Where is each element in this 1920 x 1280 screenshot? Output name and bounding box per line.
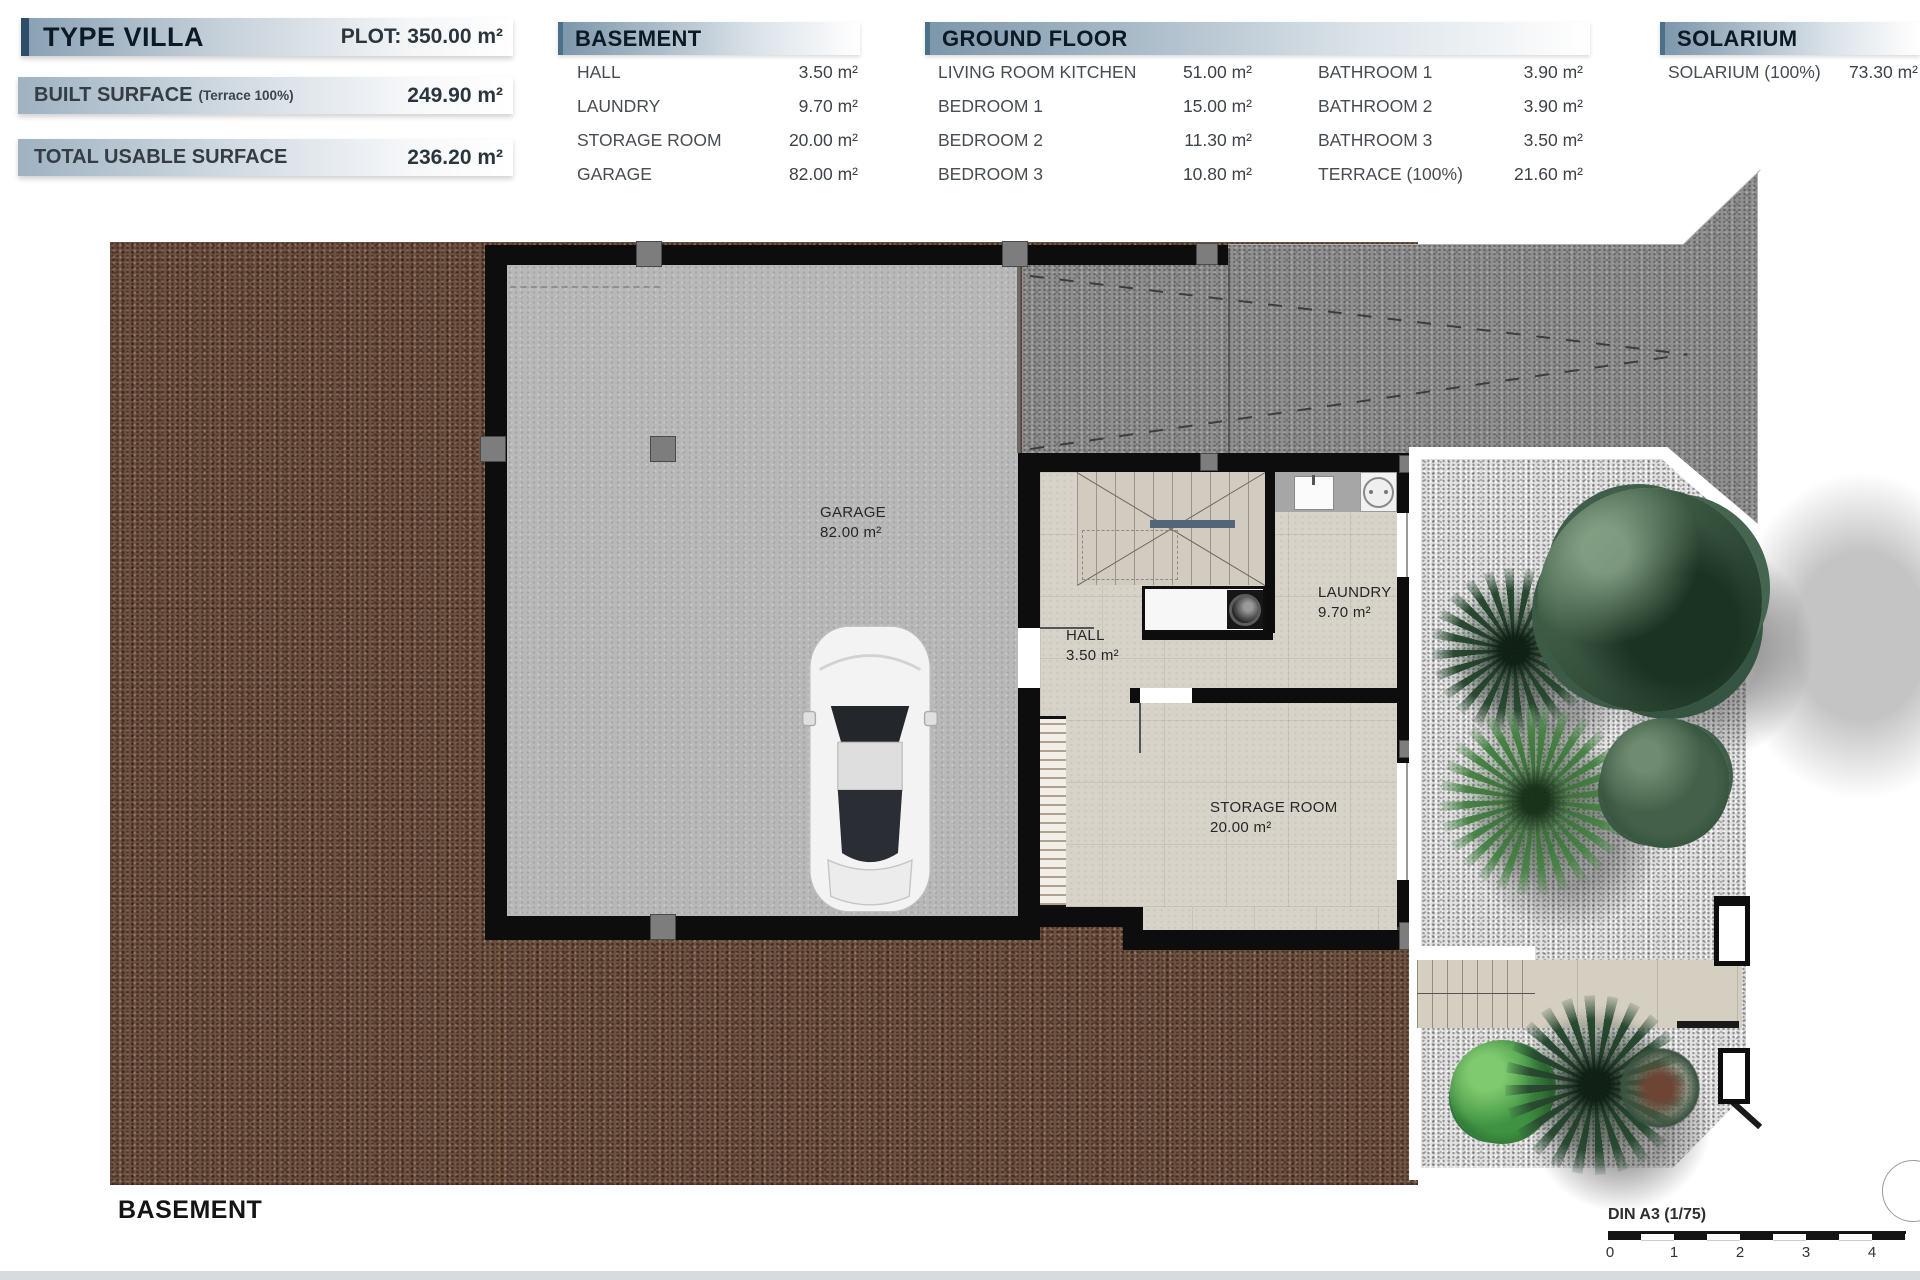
floor-caption: BASEMENT <box>118 1196 262 1225</box>
type-villa-bar: TYPE VILLA PLOT: 350.00 m² <box>21 18 513 56</box>
basement-table-rows: HALL3.50 m² LAUNDRY9.70 m² STORAGE ROOM2… <box>577 62 858 198</box>
steps-handrail-line <box>1417 993 1535 994</box>
house-wall-left-lower <box>1018 688 1040 927</box>
built-surface-label: BUILT SURFACE <box>34 84 193 107</box>
total-usable-value: 236.20 m² <box>407 146 503 170</box>
column-marker <box>636 241 662 267</box>
floor-plan-page: GARAGE 82.00 m² HALL 3.50 m² LAUNDRY 9.7… <box>0 0 1920 1280</box>
room-label-hall: HALL 3.50 m² <box>1066 626 1119 665</box>
room-label-garage: GARAGE 82.00 m² <box>820 503 886 542</box>
scale-tick: 1 <box>1670 1244 1678 1261</box>
table-row: LAUNDRY9.70 m² <box>577 96 858 120</box>
sink-tap-icon <box>1312 475 1315 485</box>
laundry-basin-unit <box>1360 472 1397 512</box>
house-wall-top <box>1040 453 1417 472</box>
column-marker <box>1002 241 1028 267</box>
room-label-storage: STORAGE ROOM 20.00 m² <box>1210 798 1338 837</box>
scale-bar-segments <box>1608 1234 1905 1241</box>
table-row: TERRACE (100%)21.60 m² <box>1318 164 1583 188</box>
scale-tick: 3 <box>1802 1244 1810 1261</box>
garage-floor <box>507 265 1018 916</box>
column-marker <box>650 914 676 940</box>
table-row: SOLARIUM (100%)73.30 m² <box>1668 62 1918 86</box>
hall-storage-wall-right <box>1192 688 1397 703</box>
large-tree <box>1538 488 1762 712</box>
room-label-laundry: LAUNDRY 9.70 m² <box>1318 583 1392 622</box>
garage-wall-left <box>485 245 507 940</box>
garage-hall-door-opening <box>1018 628 1040 688</box>
built-surface-value: 249.90 m² <box>407 84 503 108</box>
table-row: BEDROOM 211.30 m² <box>938 130 1252 154</box>
ramp-joint-line <box>1228 248 1230 454</box>
exterior-steps <box>1417 960 1535 1028</box>
ground-floor-col1: LIVING ROOM KITCHEN51.00 m² BEDROOM 115.… <box>938 62 1252 198</box>
laundry-sink <box>1294 476 1334 510</box>
ramp-slope-line-lower <box>1030 353 1687 450</box>
column-marker <box>480 436 506 462</box>
fence-post-upper <box>1714 896 1750 966</box>
type-villa-title: TYPE VILLA <box>43 22 204 53</box>
stair-landing-strip <box>1150 520 1235 528</box>
hall-storage-wall-left <box>1130 688 1140 703</box>
table-row: BEDROOM 115.00 m² <box>938 96 1252 120</box>
table-row: BATHROOM 33.50 m² <box>1318 130 1583 154</box>
total-usable-bar: TOTAL USABLE SURFACE 236.20 m² <box>18 139 513 176</box>
fence-post-lower <box>1718 1048 1750 1104</box>
ground-floor-table-header: GROUND FLOOR <box>925 22 1590 55</box>
scale-bar-label: DIN A3 (1/75) <box>1608 1206 1918 1224</box>
car-illustration <box>800 622 940 916</box>
house-wall-bottom-a <box>1018 907 1130 927</box>
garage-wall-bottom <box>485 916 1040 940</box>
storage-door-opening <box>1140 688 1192 703</box>
basement-table-header: BASEMENT <box>558 22 860 55</box>
room-area: 20.00 m² <box>1210 818 1338 838</box>
room-area: 3.50 m² <box>1066 646 1119 666</box>
solarium-table-header: SOLARIUM <box>1660 22 1920 55</box>
table-row: LIVING ROOM KITCHEN51.00 m² <box>938 62 1252 86</box>
bush <box>1600 718 1730 848</box>
solarium-table-rows: SOLARIUM (100%)73.30 m² <box>1668 62 1918 96</box>
ground-floor-col2: BATHROOM 13.90 m² BATHROOM 23.90 m² BATH… <box>1318 62 1583 198</box>
washing-machine <box>1227 590 1263 629</box>
house-wall-left-upper <box>1018 453 1040 628</box>
interior-staircase <box>1077 472 1265 585</box>
plot-edge-top <box>1228 244 1684 245</box>
steps-landing-strip <box>1417 946 1535 960</box>
column-marker <box>1196 243 1218 265</box>
table-row: STORAGE ROOM20.00 m² <box>577 130 858 154</box>
table-row: BEDROOM 310.80 m² <box>938 164 1252 188</box>
scale-tick: 2 <box>1736 1244 1744 1261</box>
room-name: GARAGE <box>820 503 886 523</box>
house-wall-bottom-b <box>1123 930 1402 950</box>
table-row: BATHROOM 13.90 m² <box>1318 62 1583 86</box>
basement-interior-floor-extension <box>1130 907 1397 932</box>
column-marker <box>1200 453 1218 471</box>
table-row: BATHROOM 23.90 m² <box>1318 96 1583 120</box>
garage-ramp-boundary-line <box>1017 265 1020 453</box>
stairs-laundry-divider-wall <box>1265 472 1275 633</box>
room-name: LAUNDRY <box>1318 583 1392 603</box>
scale-tick: 0 <box>1606 1244 1614 1261</box>
total-usable-label: TOTAL USABLE SURFACE <box>34 146 287 169</box>
washer-drum-icon <box>1229 594 1261 626</box>
built-surface-bar: BUILT SURFACE (Terrace 100%) 249.90 m² <box>18 77 513 114</box>
car-top-view <box>800 622 940 916</box>
ramp-slope-line-upper <box>1030 275 1688 355</box>
column-marker <box>650 436 676 462</box>
garage-wall-top <box>485 245 1228 265</box>
room-name: HALL <box>1066 626 1119 646</box>
counter-base-wall <box>1142 633 1273 640</box>
scale-tick: 4 <box>1868 1244 1876 1261</box>
room-area: 82.00 m² <box>820 523 886 543</box>
storage-door-leaf <box>1139 703 1141 753</box>
scale-bar: DIN A3 (1/75) 0 1 2 3 4 <box>1608 1206 1918 1266</box>
basin-ring-icon <box>1363 477 1394 508</box>
path-edge-bar <box>1677 1021 1739 1028</box>
table-row: HALL3.50 m² <box>577 62 858 86</box>
garage-door-dashed-line <box>500 286 660 288</box>
plot-value: PLOT: 350.00 m² <box>341 25 503 49</box>
red-plant <box>1620 1048 1700 1128</box>
table-row: GARAGE82.00 m² <box>577 164 858 188</box>
room-name: STORAGE ROOM <box>1210 798 1338 818</box>
page-bottom-strip <box>0 1271 1920 1280</box>
built-surface-note: (Terrace 100%) <box>199 88 294 103</box>
stair-dashed-outline <box>1082 530 1178 580</box>
room-area: 9.70 m² <box>1318 603 1392 623</box>
